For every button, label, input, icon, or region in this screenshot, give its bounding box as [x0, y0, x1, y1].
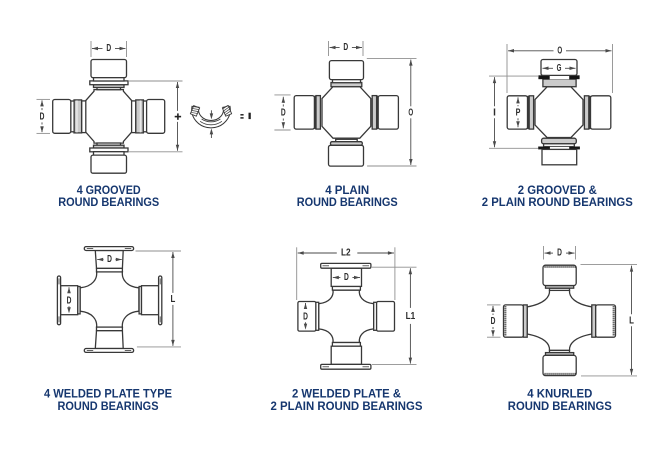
svg-text:D: D: [557, 248, 562, 259]
svg-text:D: D: [107, 254, 112, 265]
svg-text:2 PLAIN ROUND BEARINGS: 2 PLAIN ROUND BEARINGS: [271, 399, 423, 413]
svg-text:L1: L1: [406, 311, 416, 322]
svg-text:ROUND BEARINGS: ROUND BEARINGS: [58, 399, 159, 413]
svg-text:2 PLAIN ROUND BEARINGS: 2 PLAIN ROUND BEARINGS: [482, 195, 633, 209]
svg-text:G: G: [557, 63, 562, 74]
svg-text:D: D: [303, 311, 308, 322]
svg-text:ROUND BEARINGS: ROUND BEARINGS: [508, 399, 612, 413]
svg-text:I: I: [493, 107, 496, 118]
svg-text:L: L: [629, 315, 634, 326]
svg-text:D: D: [40, 112, 45, 123]
svg-text:O: O: [408, 107, 413, 118]
svg-text:D: D: [344, 272, 349, 283]
svg-text:D: D: [343, 42, 348, 53]
svg-text:ROUND BEARINGS: ROUND BEARINGS: [297, 195, 398, 209]
svg-text:D: D: [106, 43, 111, 54]
svg-text:D: D: [281, 108, 286, 119]
svg-text:O: O: [557, 45, 562, 56]
svg-text:L2: L2: [341, 248, 351, 259]
svg-text:ROUND BEARINGS: ROUND BEARINGS: [58, 195, 159, 209]
svg-text:P: P: [516, 107, 521, 118]
svg-text:D: D: [67, 295, 72, 306]
svg-text:D: D: [491, 316, 496, 327]
svg-text:L: L: [171, 294, 176, 305]
